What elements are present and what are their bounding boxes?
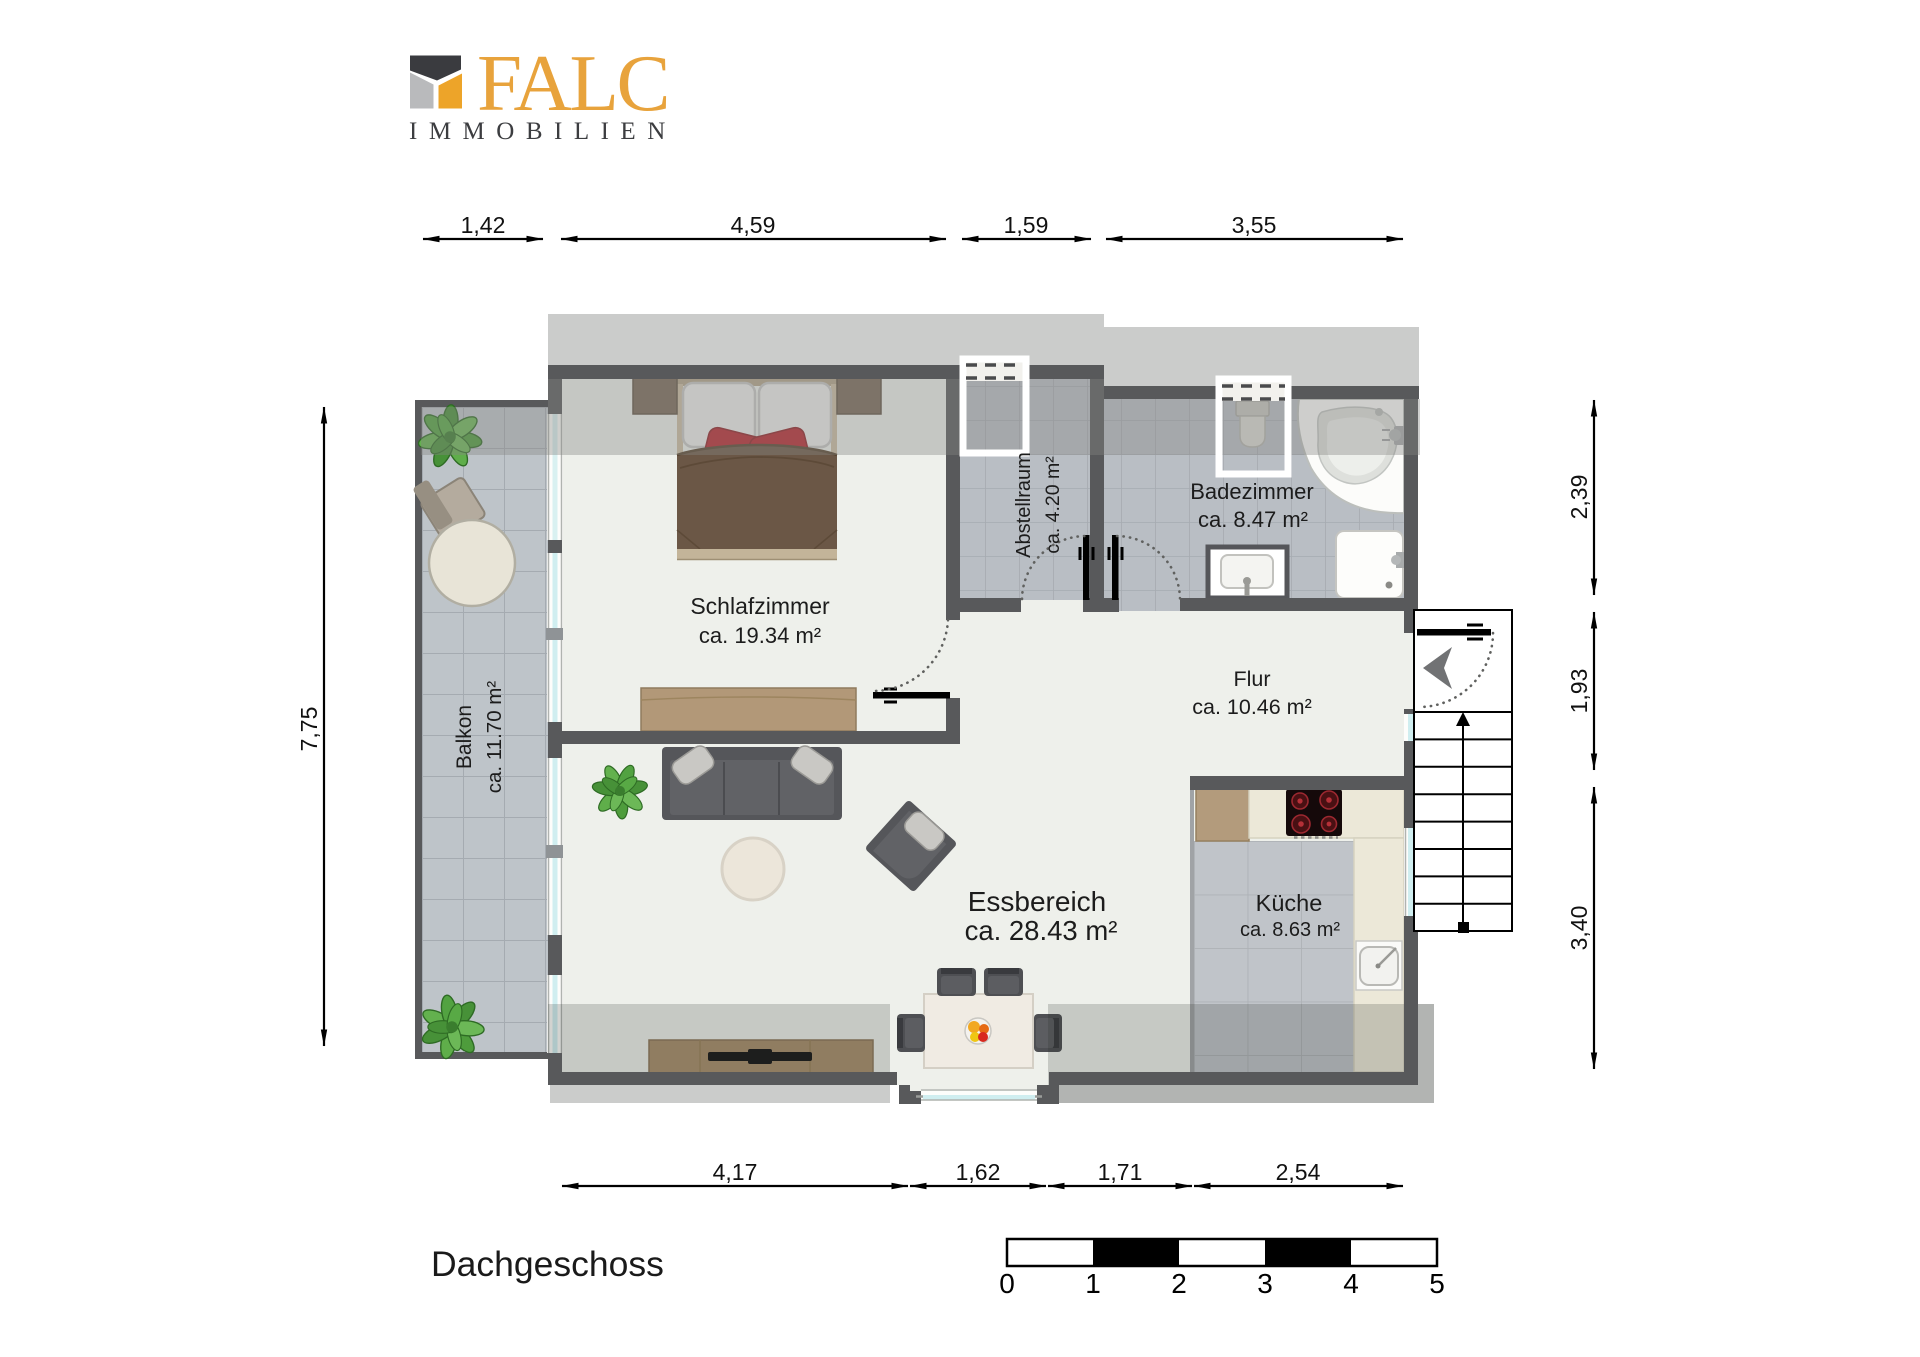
svg-text:ca. 8.63 m²: ca. 8.63 m² [1240,919,1340,941]
svg-text:Balkon: Balkon [453,705,476,769]
svg-text:Dachgeschoss: Dachgeschoss [431,1244,664,1284]
svg-text:Essbereich: Essbereich [968,886,1107,917]
svg-text:1,42: 1,42 [461,212,506,238]
svg-text:ca. 19.34 m²: ca. 19.34 m² [699,623,821,648]
svg-text:1,93: 1,93 [1566,669,1592,714]
svg-text:ca. 10.46 m²: ca. 10.46 m² [1192,695,1312,719]
svg-text:1,71: 1,71 [1098,1159,1143,1185]
svg-text:4: 4 [1343,1268,1359,1299]
svg-text:4,17: 4,17 [713,1159,758,1185]
svg-text:FALC: FALC [477,38,668,128]
svg-text:ca. 4.20 m²: ca. 4.20 m² [1042,456,1064,554]
svg-text:Badezimmer: Badezimmer [1190,479,1313,504]
svg-text:2,39: 2,39 [1566,475,1592,520]
svg-text:Küche: Küche [1256,890,1323,916]
svg-text:Schlafzimmer: Schlafzimmer [690,593,830,619]
svg-text:7,75: 7,75 [296,707,322,752]
svg-text:2,54: 2,54 [1276,1159,1321,1185]
svg-text:Flur: Flur [1233,667,1270,691]
svg-text:3,55: 3,55 [1232,212,1277,238]
svg-text:ca. 28.43 m²: ca. 28.43 m² [965,915,1118,946]
svg-text:1: 1 [1085,1268,1101,1299]
svg-text:IMMOBILIEN: IMMOBILIEN [409,118,677,145]
svg-text:0: 0 [999,1268,1015,1299]
svg-text:3: 3 [1257,1268,1273,1299]
svg-text:ca. 11.70 m²: ca. 11.70 m² [483,681,506,794]
svg-text:2: 2 [1171,1268,1187,1299]
svg-text:ca. 8.47 m²: ca. 8.47 m² [1198,507,1308,532]
svg-text:3,40: 3,40 [1566,906,1592,951]
svg-text:1,62: 1,62 [956,1159,1001,1185]
svg-text:1,59: 1,59 [1004,212,1049,238]
svg-text:4,59: 4,59 [731,212,776,238]
svg-text:5: 5 [1429,1268,1445,1299]
svg-text:Abstellraum: Abstellraum [1013,452,1035,558]
